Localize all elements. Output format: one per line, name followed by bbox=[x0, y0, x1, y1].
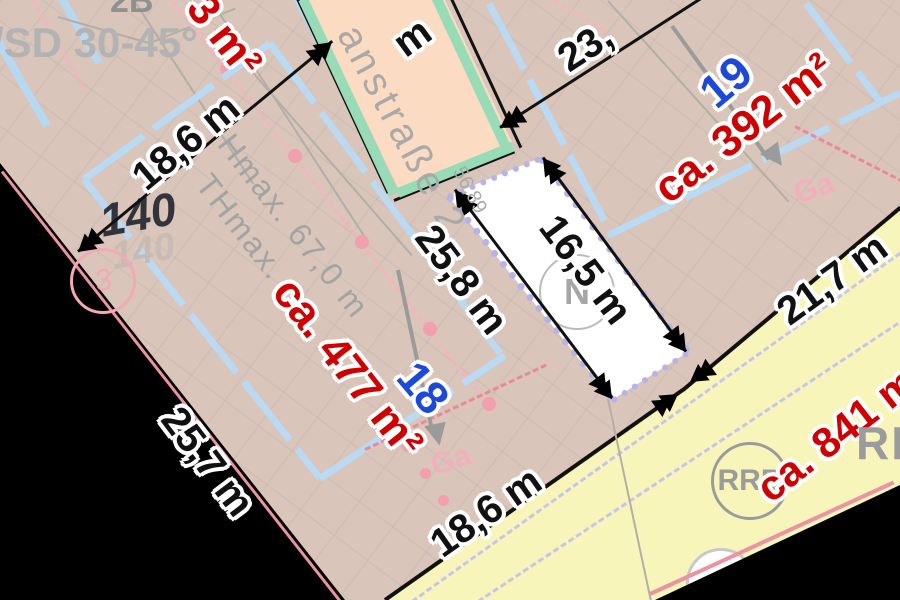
measurement-east: 21,7 m bbox=[770, 227, 894, 333]
district-label-fragment: 2B bbox=[110, 0, 153, 18]
boundary-point-marker bbox=[438, 495, 449, 506]
garage-label-19: Ga bbox=[790, 168, 837, 209]
roof-pitch-label: /SD 30-45° bbox=[0, 22, 198, 64]
measurement-top-fragment: m bbox=[386, 11, 438, 64]
plot-number: 140 bbox=[96, 185, 180, 244]
boundary-point-marker bbox=[355, 235, 369, 249]
boundary-point-marker bbox=[482, 397, 496, 411]
plan-map[interactable]: RRB N 140 3 140 bbox=[0, 0, 900, 600]
measurement-edge: 25,7 m bbox=[154, 400, 261, 524]
boundary-point-marker bbox=[288, 149, 302, 163]
boundary-point-marker bbox=[423, 322, 437, 336]
boundary-point-circle: 3 bbox=[70, 248, 136, 314]
basin-big-label-fragment: RRB bbox=[856, 420, 900, 466]
measurement-north: 23, bbox=[551, 15, 619, 79]
boundary-point-marker bbox=[420, 468, 431, 479]
measure-line-north bbox=[499, 0, 715, 129]
boundary-point-number: 3 bbox=[91, 262, 116, 299]
